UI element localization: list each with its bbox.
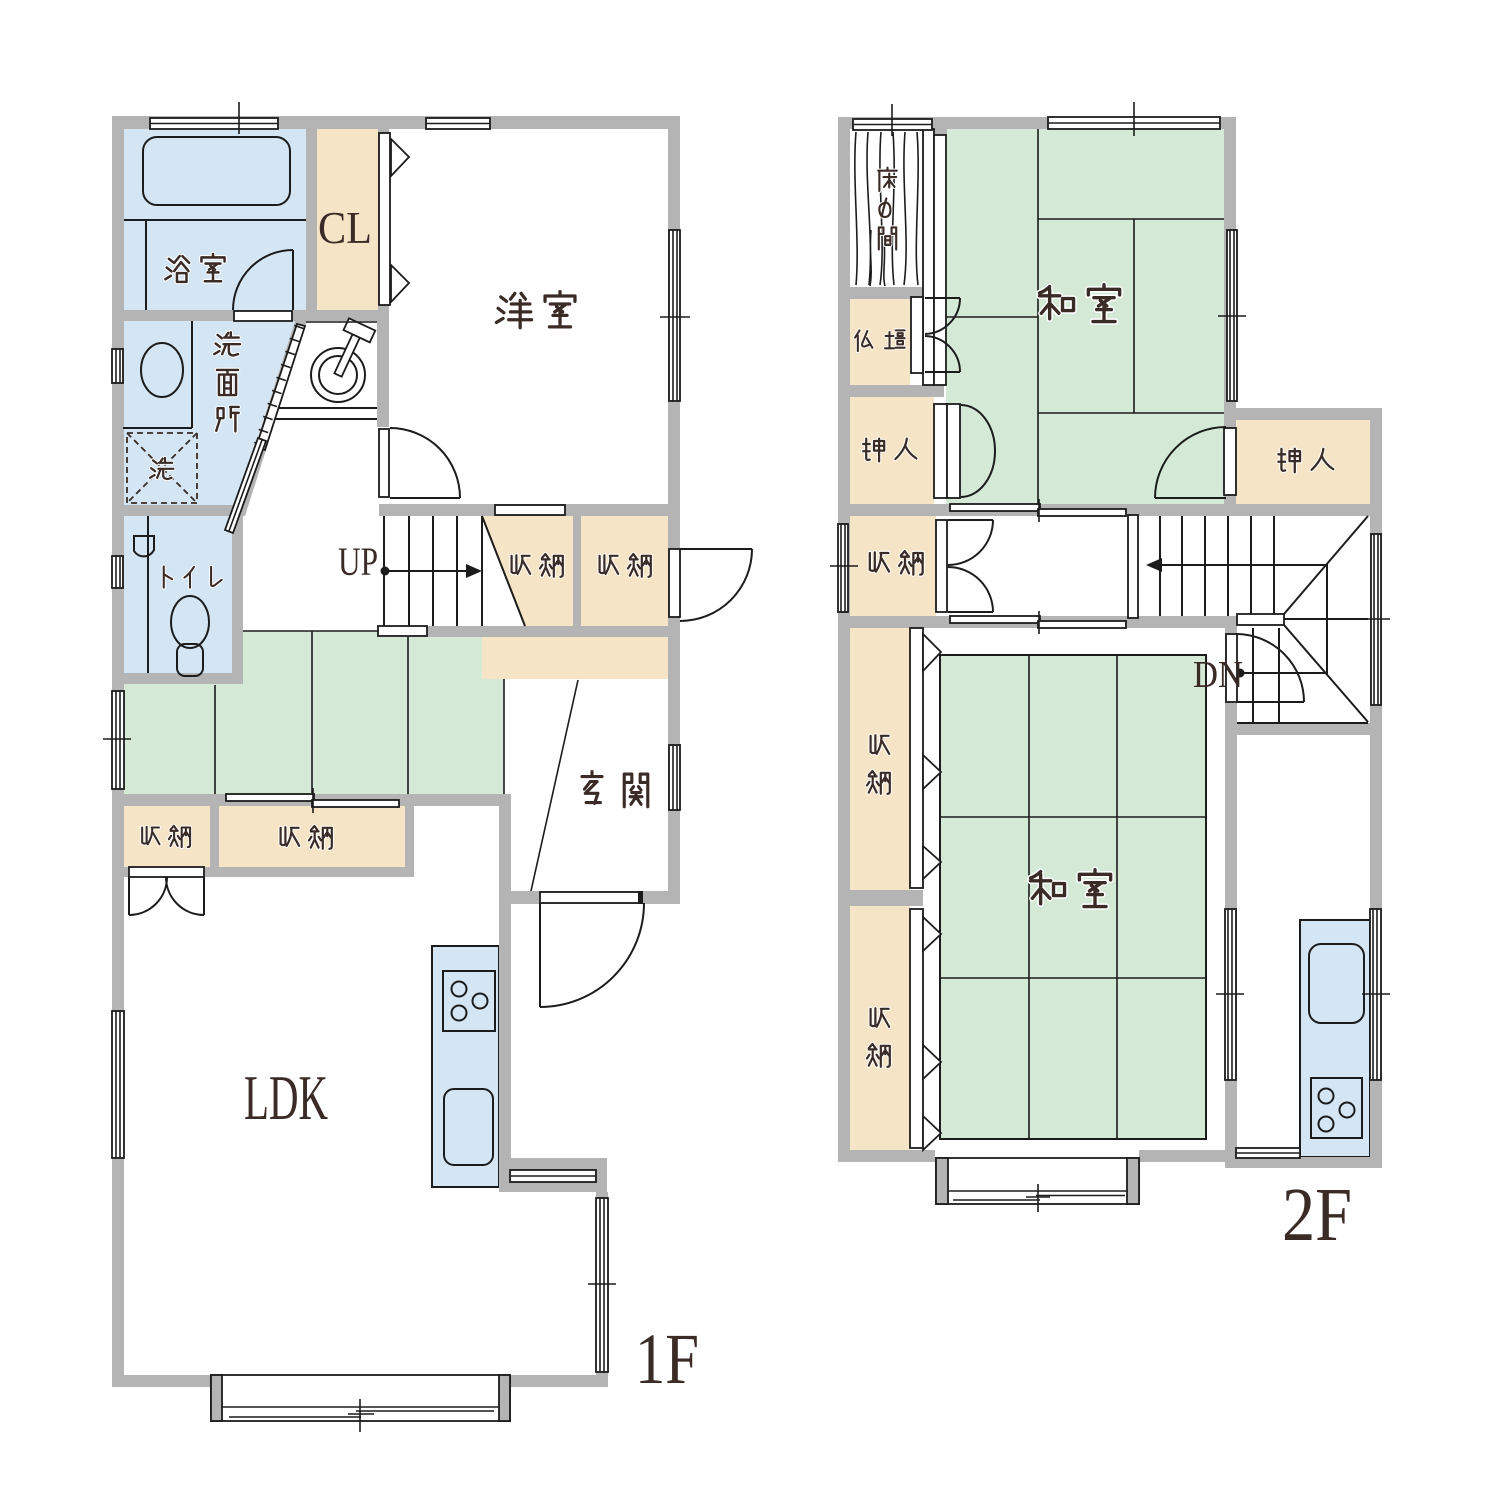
svg-text:1F: 1F	[635, 1319, 699, 1399]
svg-text:2F: 2F	[1282, 1173, 1352, 1257]
svg-text:LDK: LDK	[244, 1062, 328, 1133]
svg-text:DN: DN	[1193, 654, 1243, 696]
svg-text:CL: CL	[318, 202, 372, 253]
svg-text:UP: UP	[338, 539, 378, 584]
